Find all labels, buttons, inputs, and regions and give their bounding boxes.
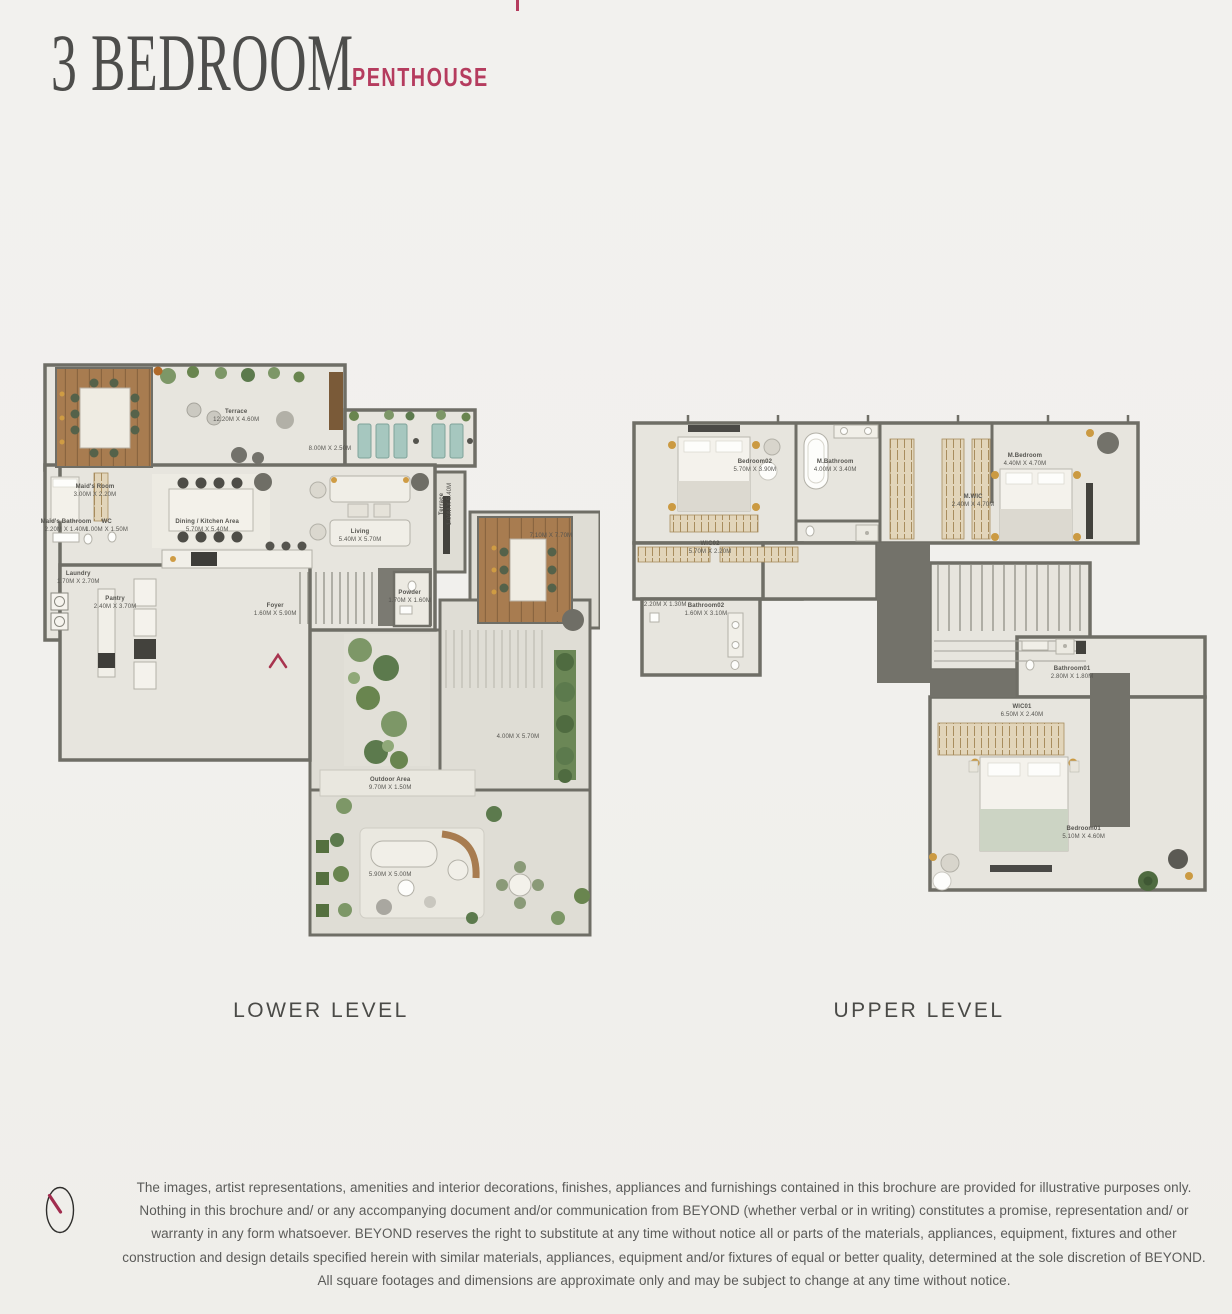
page-title: 3 BEDROOM [51,22,354,104]
outdoor-area-strip [320,770,475,796]
lower-level-floorplan-drawing [42,362,600,937]
powder-room-fixtures [394,572,430,626]
disclaimer-text: The images, artist representations, amen… [118,1176,1210,1292]
structural-column [254,473,272,491]
wic01-wardrobe [938,723,1064,755]
tv-console [443,496,450,554]
brochure-page: { "page": { "title": "3 BEDROOM", "subti… [0,0,1232,1314]
upper-level-caption: UPPER LEVEL [628,999,1210,1023]
page-subtitle: PENTHOUSE [352,64,489,90]
upper-level-plan: Bedroom025.70M X 3.90MM.Bathroom4.00M X … [628,413,1210,905]
top-accent-mark [516,0,519,11]
brand-clock-logo [45,1186,75,1234]
side-hedge [554,650,576,783]
upper-level-floorplan-drawing [628,413,1210,905]
lower-level-caption: LOWER LEVEL [42,999,600,1023]
planter-strip [344,634,430,769]
lower-level-plan: Terrace12.20M X 4.60M8.00M X 2.50MMaid's… [42,362,600,937]
structural-column [411,473,429,491]
